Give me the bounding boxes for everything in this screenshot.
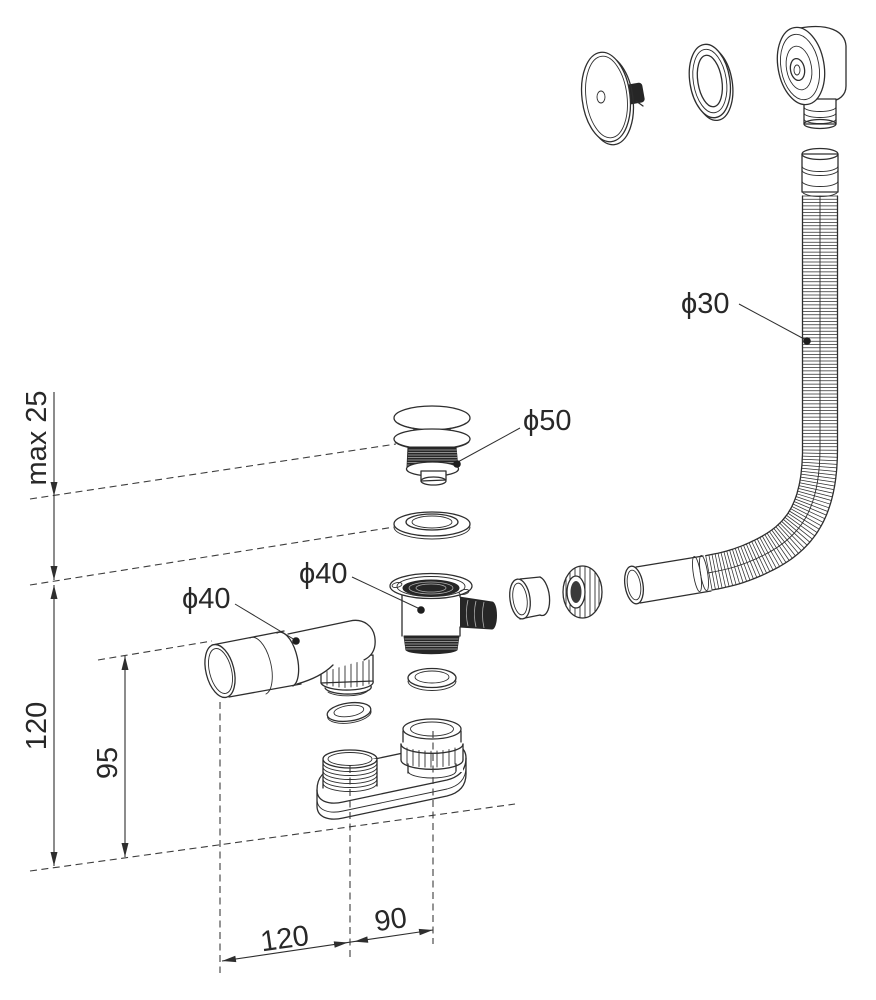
gasket-face [684,41,735,120]
hose-nut [563,566,602,618]
tee-gasket [408,669,456,691]
elbow-gasket-outer [326,700,372,724]
dim-bottom-arrow-b1 [334,941,348,947]
technical-drawing-page: max 25 120 95 120 90 ϕ30 ϕ50 ϕ40 [0,0,876,1000]
max25-label: max 25 [21,390,53,485]
dia40-elbow-label: ϕ40 [182,583,231,615]
compression-ring [507,577,549,620]
dim-bottom-arrow-b2 [354,936,368,942]
dim120-left-label: 120 [21,702,53,750]
inlet-elbow [200,620,375,700]
elbow-gasket [326,700,372,726]
flexible-hose [622,149,838,606]
exploded-assembly-drawing: max 25 120 95 120 90 ϕ30 ϕ50 ϕ40 [0,0,876,1000]
dia50-dot [453,460,461,468]
trap-body [317,719,466,819]
construction-line-elbow-axis [98,641,212,660]
diameter-callouts: ϕ30 ϕ50 ϕ40 ϕ40 [182,288,811,645]
dim120-arrow-bottom [51,852,58,866]
plug-flange [394,429,470,449]
dim120-bottom-label: 120 [259,920,311,958]
tee-side-outlet-end [488,602,497,629]
dimension-120-left: 120 [21,585,58,866]
dim95-arrow-top [122,656,129,670]
ring-back-arc [540,577,550,615]
overflow-cover [577,49,645,147]
max25-arrow-2 [51,566,58,580]
dia50-leader [456,428,520,463]
nut-bore [571,581,582,603]
construction-line-base-plane [30,804,515,871]
dia40-elbow-dot [292,637,300,645]
dim-bottom-arrow-a [222,956,236,962]
dim90-bottom-label: 90 [373,902,409,938]
overflow-elbow [772,24,846,129]
overflow-gasket [684,41,738,124]
dia30-leader [739,304,806,340]
construction-line-plug-flange [30,444,396,499]
plug-tail [421,471,446,481]
dia50-label: ϕ50 [523,405,572,437]
dia30-dot [803,337,811,345]
dimension-95: 95 [92,656,129,857]
dim95-label: 95 [92,747,124,779]
popup-plug [394,406,470,485]
dim95-arrow-bottom [122,843,129,857]
dia30-label: ϕ30 [681,288,730,320]
hose-centerline [708,196,820,573]
dim-bottom-arrow-c [419,929,433,935]
dia40-tee-label: ϕ40 [299,558,348,590]
dia40-tee-dot [417,606,425,614]
hose-outline-left [706,196,803,556]
dimension-max25: max 25 [21,390,58,580]
dimension-bottom: 120 90 [222,902,433,962]
dim120-arrow-top [51,585,58,599]
drain-tee [390,574,497,654]
plug-gasket [394,512,470,539]
